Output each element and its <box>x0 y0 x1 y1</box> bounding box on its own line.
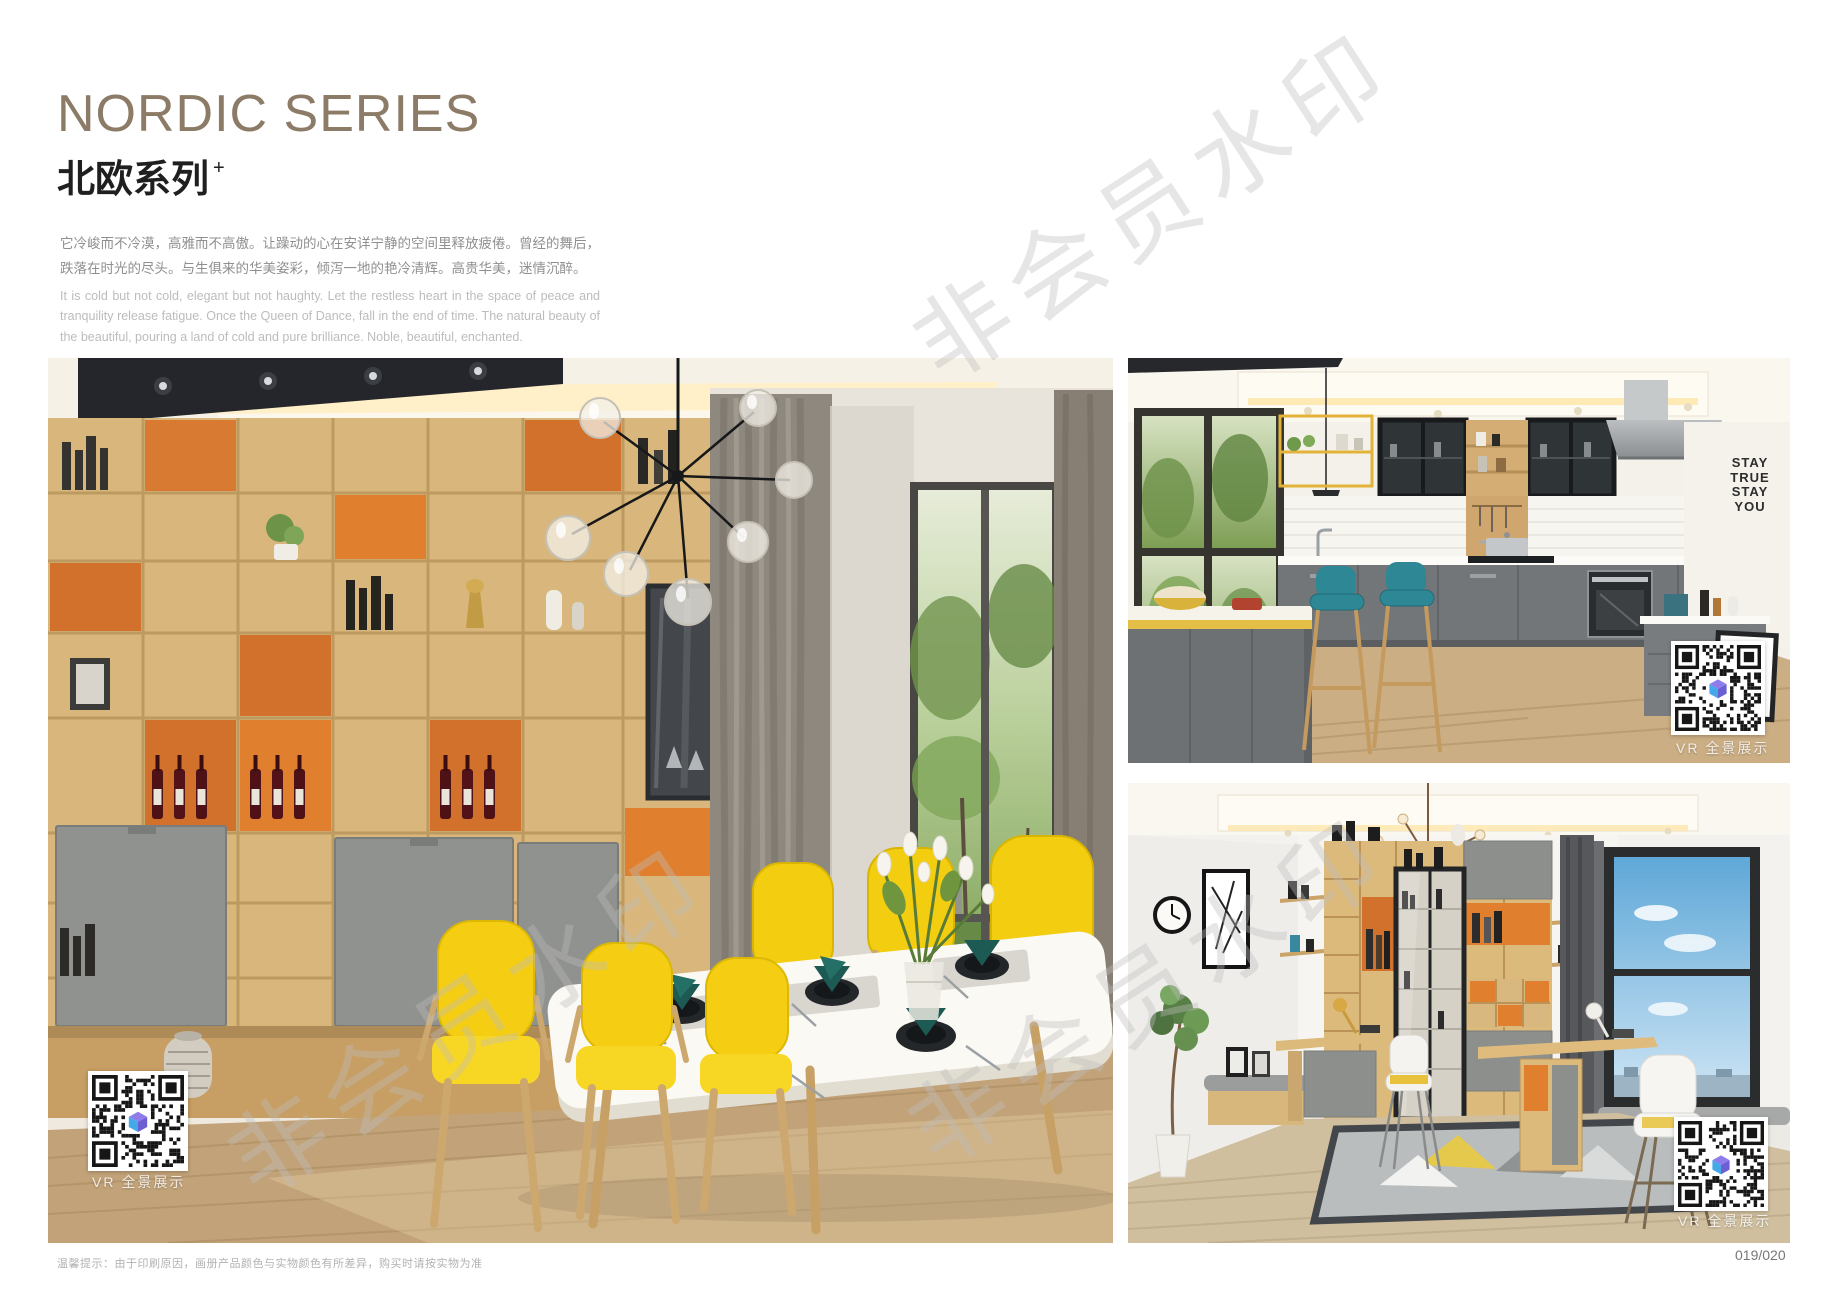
print-disclaimer: 温馨提示：由于印刷原因，画册产品颜色与实物颜色有所差异，购买时请按实物为准 <box>57 1255 483 1271</box>
wall-art-line: YOU <box>1724 500 1776 515</box>
oven <box>1588 571 1652 637</box>
bust-decor <box>1451 824 1465 846</box>
description-zh: 它冷峻而不冷漠，高雅而不高傲。让躁动的心在安详宁静的空间里释放疲倦。曾经的舞后，… <box>60 232 600 282</box>
qr-code-image <box>1678 1121 1764 1207</box>
study-room-photo: VR 全景展示 <box>1128 783 1790 1243</box>
page-title: NORDIC SERIES <box>57 84 480 144</box>
qr-code-kitchen <box>1671 641 1765 735</box>
description-en: It is cold but not cold, elegant but not… <box>60 286 600 347</box>
qr-code-image <box>1675 645 1761 731</box>
qr-code-image <box>92 1075 184 1167</box>
upper-cabinets <box>1380 420 1614 496</box>
cubby-grid <box>1468 979 1550 1027</box>
watermark-text: 非会员水印 <box>882 0 1419 408</box>
dining-room-illustration <box>48 358 1113 1243</box>
wall-clock <box>1155 898 1189 932</box>
vr-panorama-label: VR 全景展示 <box>1676 738 1769 758</box>
catalog-page: NORDIC SERIES 北欧系列+ 它冷峻而不冷漠，高雅而不高傲。让躁动的心… <box>0 0 1836 1307</box>
page-title-zh: 北欧系列+ <box>57 148 225 203</box>
wall-art-text: STAY TRUE STAY YOU <box>1724 456 1776 514</box>
page-title-zh-text: 北欧系列 <box>57 159 209 201</box>
vr-panorama-label: VR 全景展示 <box>92 1172 185 1192</box>
kitchen-photo: STAY TRUE STAY YOU VR 全景展示 <box>1128 358 1790 763</box>
title-plus-mark: + <box>213 157 225 179</box>
qr-code-study <box>1674 1117 1768 1211</box>
wall-art-line: STAY <box>1724 485 1776 500</box>
vr-panorama-label: VR 全景展示 <box>1678 1211 1771 1231</box>
qr-code-dining <box>88 1071 188 1171</box>
page-number: 019/020 <box>1735 1247 1786 1263</box>
dining-room-photo: VR 全景展示 <box>48 358 1113 1243</box>
wall-art-line: TRUE <box>1724 471 1776 486</box>
abstract-art-frame <box>1204 871 1248 967</box>
wall-art-line: STAY <box>1724 456 1776 471</box>
island <box>1128 586 1312 763</box>
